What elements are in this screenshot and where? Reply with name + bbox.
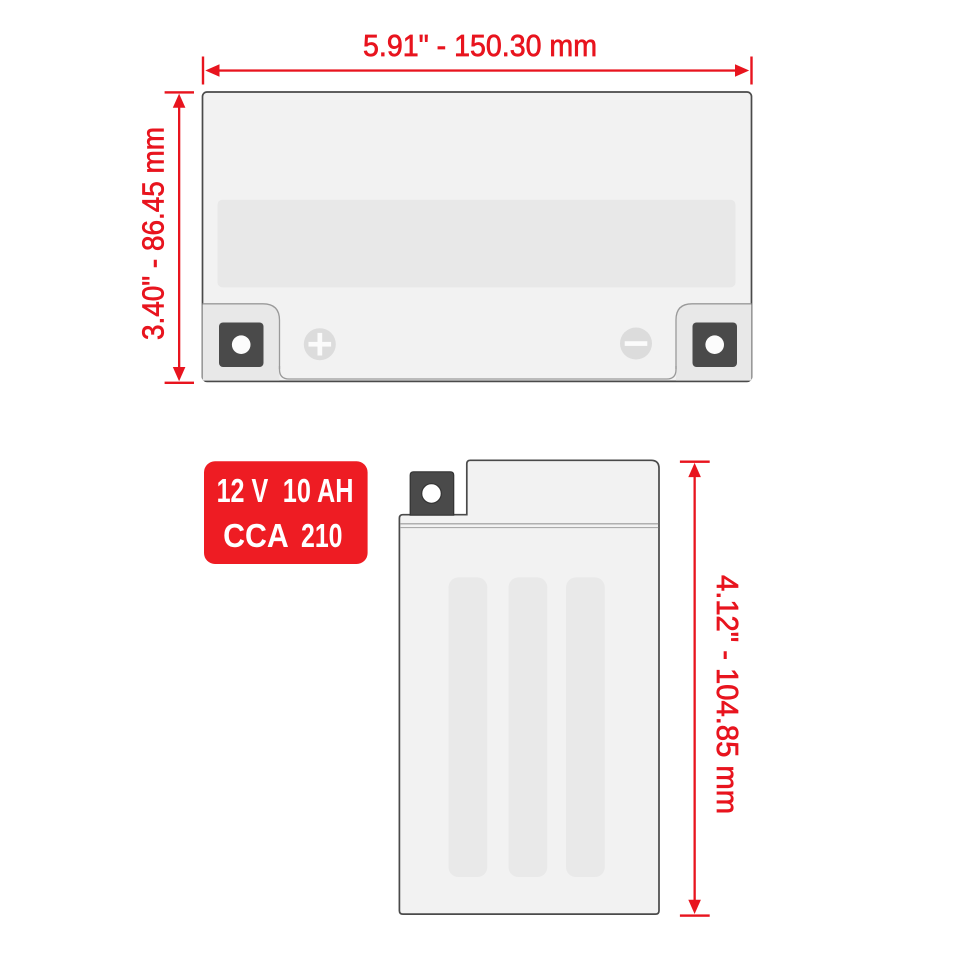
svg-text:10 AH: 10 AH xyxy=(283,472,354,509)
svg-text:210: 210 xyxy=(301,517,343,554)
svg-text:3.40" - 86.45 mm: 3.40" - 86.45 mm xyxy=(136,127,171,340)
svg-text:CCA: CCA xyxy=(223,517,289,554)
svg-text:12 V: 12 V xyxy=(217,472,269,509)
svg-text:4.12" - 104.85 mm: 4.12" - 104.85 mm xyxy=(710,575,745,814)
svg-text:5.91" - 150.30 mm: 5.91" - 150.30 mm xyxy=(363,28,597,63)
